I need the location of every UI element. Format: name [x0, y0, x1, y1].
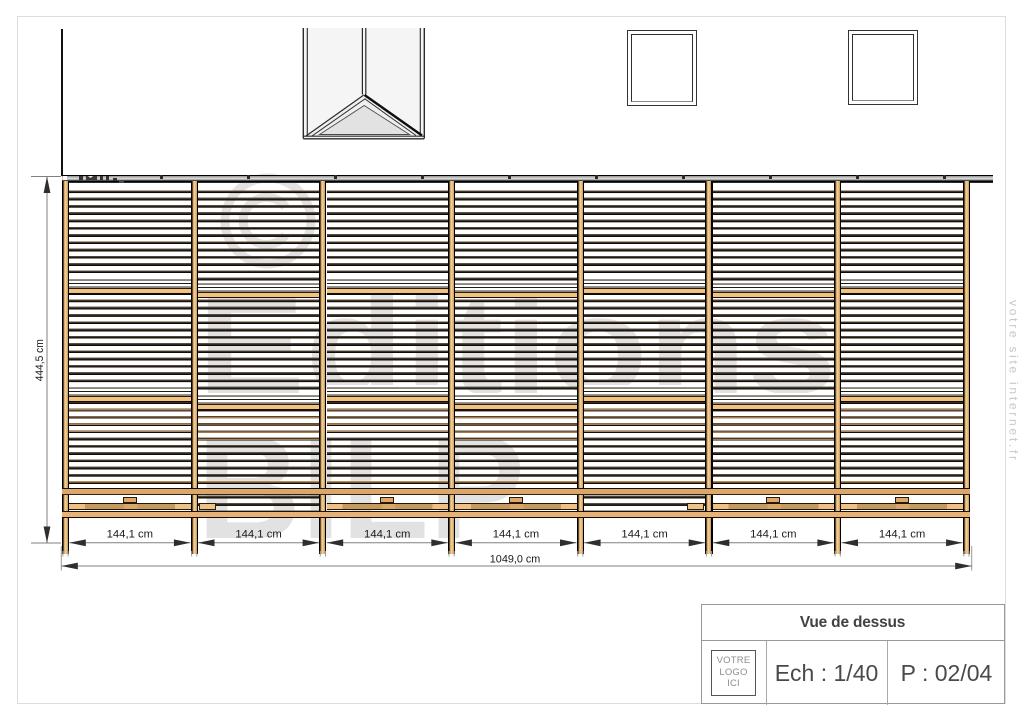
svg-text:444,5 cm: 444,5 cm [34, 339, 46, 381]
svg-text:1049,0 cm: 1049,0 cm [490, 554, 541, 566]
